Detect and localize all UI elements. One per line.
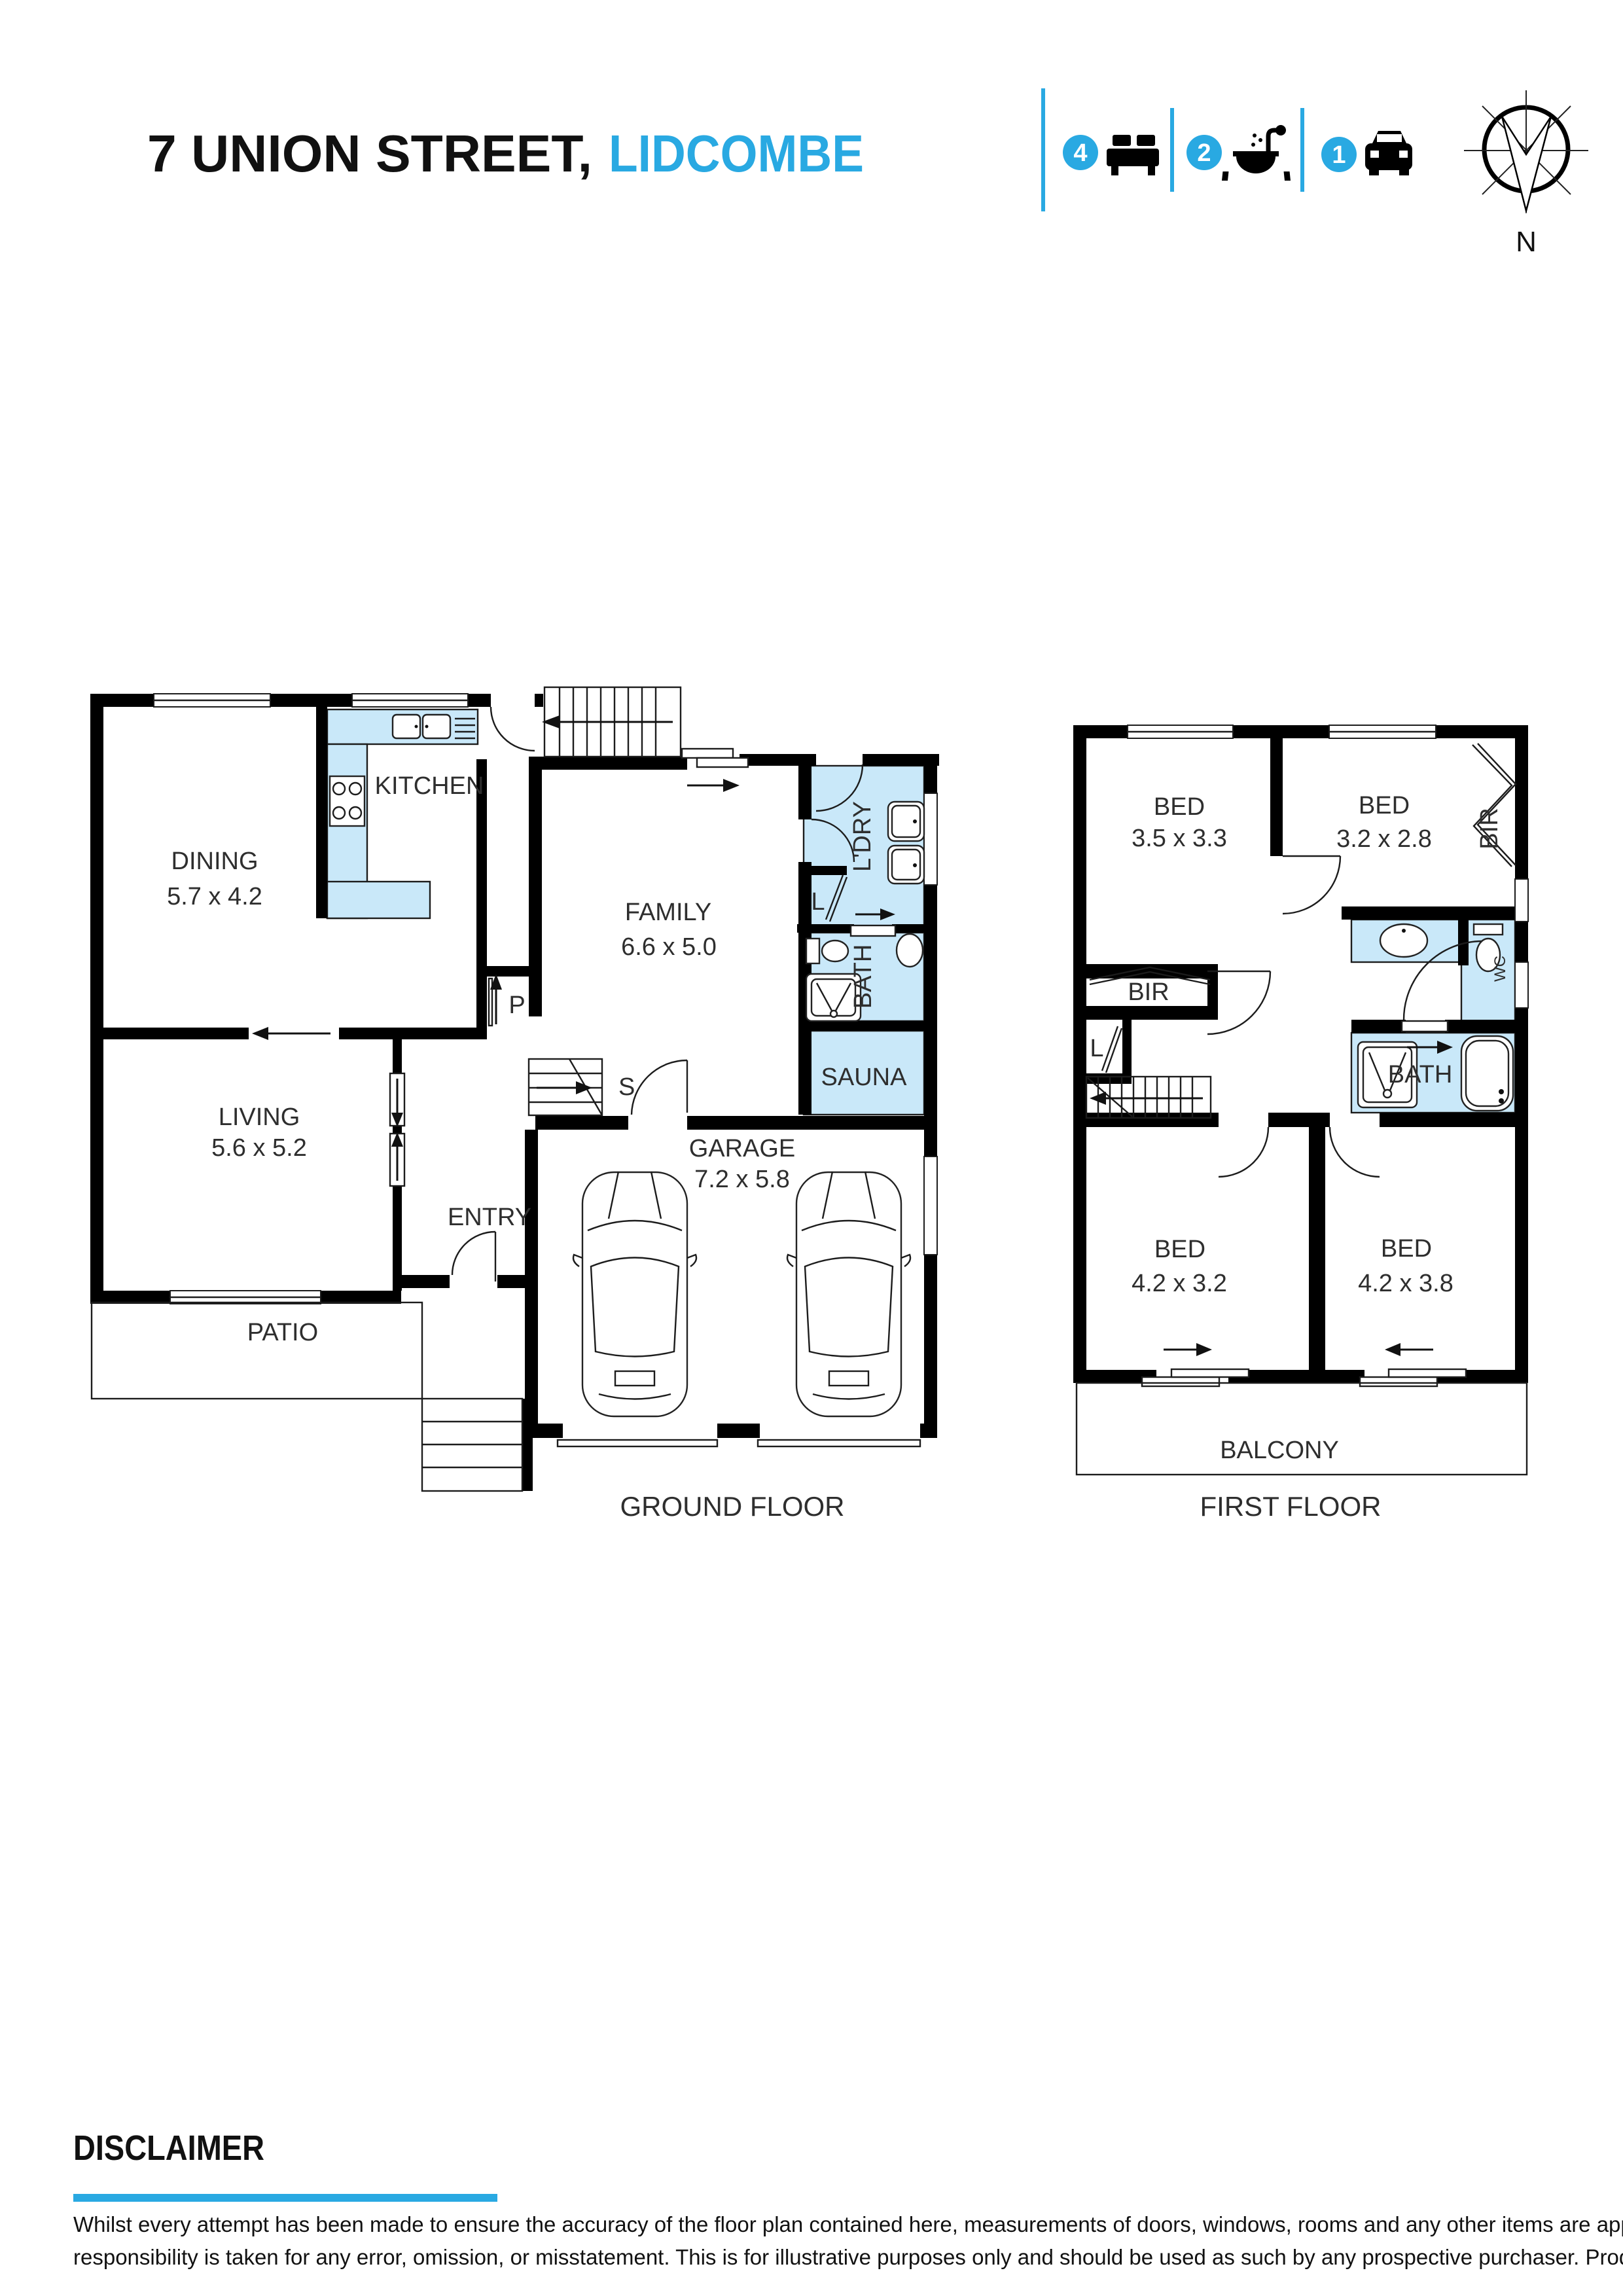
- window-sill: [1360, 1377, 1437, 1386]
- toilet: [806, 939, 848, 963]
- door-arc: [1283, 856, 1340, 914]
- window-sill: [1389, 1369, 1466, 1377]
- stove: [330, 776, 365, 826]
- bed4-label: BED: [1381, 1235, 1432, 1263]
- window: [1515, 962, 1528, 1008]
- balcony-label: BALCONY: [1220, 1437, 1339, 1464]
- compass: N: [1464, 90, 1588, 258]
- window-sill: [1142, 1377, 1219, 1386]
- bir-label: BIR: [1128, 978, 1169, 1006]
- stat-bedrooms: 4: [1063, 135, 1159, 175]
- stats-bar: 4 2: [1041, 88, 1412, 211]
- pantry-label: P: [508, 992, 525, 1019]
- bir-label: BIR: [1476, 808, 1503, 849]
- sliding-door: [682, 749, 733, 758]
- stat-cars: 1: [1321, 131, 1412, 175]
- stat-divider: [1300, 108, 1304, 192]
- dining-dims: 5.7 x 4.2: [167, 883, 262, 910]
- disclaimer-section: DISCLAIMER Whilst every attempt has been…: [73, 2128, 1623, 2269]
- bath-icon: [1222, 125, 1291, 181]
- living-dims: 5.6 x 5.2: [211, 1134, 307, 1162]
- car-icon: [1365, 131, 1412, 175]
- car-count: 1: [1332, 141, 1346, 169]
- door-arc: [491, 707, 535, 751]
- sliding-door: [1402, 1021, 1448, 1031]
- patio-outline: [92, 1302, 422, 1399]
- disclaimer-heading: DISCLAIMER: [73, 2128, 264, 2168]
- ground-floor-plan: DINING 5.7 x 4.2 KITCHEN P FAMILY 6.6 x …: [90, 687, 939, 1522]
- car: [573, 1172, 696, 1416]
- door-arc: [452, 1232, 495, 1275]
- patio-steps: [422, 1399, 522, 1491]
- bed2-dims: 3.2 x 2.8: [1336, 825, 1432, 853]
- patio-label: PATIO: [247, 1319, 318, 1346]
- dining-label: DINING: [171, 848, 259, 875]
- ground-floor-caption: GROUND FLOOR: [620, 1491, 844, 1522]
- bathroom-count: 2: [1197, 139, 1211, 167]
- vanity-sink: [1380, 924, 1427, 957]
- family-dims: 6.6 x 5.0: [621, 933, 717, 961]
- linen-label: L: [811, 888, 825, 916]
- bed3-dims: 4.2 x 3.2: [1132, 1270, 1227, 1297]
- floorplan-canvas: 7 UNION STREET, LIDCOMBE 4 2: [0, 0, 1623, 2296]
- door-arc: [1219, 1127, 1268, 1177]
- bed1-dims: 3.5 x 3.3: [1132, 825, 1227, 852]
- header: 7 UNION STREET, LIDCOMBE 4 2: [147, 88, 1588, 258]
- kitchen-label: KITCHEN: [375, 772, 484, 800]
- first-floor-plan: BED 3.5 x 3.3 BED 3.2 x 2.8 BIR BIR L WC…: [1073, 725, 1528, 1522]
- bathtub: [1461, 1036, 1513, 1111]
- bed3-label: BED: [1154, 1236, 1205, 1263]
- bed4-dims: 4.2 x 3.8: [1358, 1270, 1454, 1297]
- linen-label: L: [1090, 1035, 1103, 1062]
- wc-label: WC: [1491, 956, 1509, 982]
- floorplan-page: 7 UNION STREET, LIDCOMBE 4 2: [0, 0, 1623, 2296]
- bed2-label: BED: [1359, 792, 1410, 819]
- sauna-label: SAUNA: [821, 1064, 908, 1091]
- entry-label: ENTRY: [448, 1204, 531, 1231]
- closet-door: [1106, 1028, 1122, 1073]
- door-arc: [1330, 1127, 1380, 1177]
- page-title: 7 UNION STREET,: [147, 124, 592, 183]
- stat-divider: [1041, 88, 1045, 211]
- bed-icon: [1107, 135, 1159, 175]
- living-label: LIVING: [219, 1103, 300, 1131]
- disclaimer-line: Whilst every attempt has been made to en…: [73, 2212, 1623, 2236]
- door-arc: [632, 1060, 687, 1115]
- first-floor-caption: FIRST FLOOR: [1200, 1491, 1382, 1522]
- closet-door: [1102, 1026, 1118, 1071]
- car: [787, 1172, 910, 1416]
- stairs-label: S: [618, 1073, 635, 1101]
- window-sill: [1171, 1369, 1249, 1377]
- bed1-label: BED: [1154, 793, 1205, 821]
- garage-label: GARAGE: [689, 1135, 796, 1162]
- compass-north-label: N: [1516, 226, 1537, 258]
- sliding-door: [851, 925, 895, 936]
- upper-stairs: [542, 687, 681, 757]
- laundry-label: L'DRY: [849, 801, 876, 872]
- stat-divider: [1170, 108, 1174, 192]
- bedroom-count: 4: [1073, 139, 1087, 167]
- window: [1515, 879, 1528, 922]
- garage-door: [758, 1440, 920, 1446]
- family-label: FAMILY: [625, 899, 711, 926]
- stat-bathrooms: 2: [1186, 125, 1291, 181]
- lower-stairs: [529, 1059, 602, 1115]
- garage-dims: 7.2 x 5.8: [694, 1166, 790, 1193]
- window: [924, 1157, 937, 1255]
- disclaimer-rule: [73, 2194, 497, 2202]
- bath-label: BATH: [1388, 1061, 1453, 1088]
- vanity-sink: [897, 934, 923, 967]
- sliding-door: [697, 758, 748, 767]
- garage-door: [558, 1440, 717, 1446]
- page-title-suburb: LIDCOMBE: [609, 124, 864, 183]
- window: [924, 793, 937, 885]
- bath-label: BATH: [849, 944, 877, 1009]
- disclaimer-line: responsibility is taken for any error, o…: [73, 2245, 1623, 2269]
